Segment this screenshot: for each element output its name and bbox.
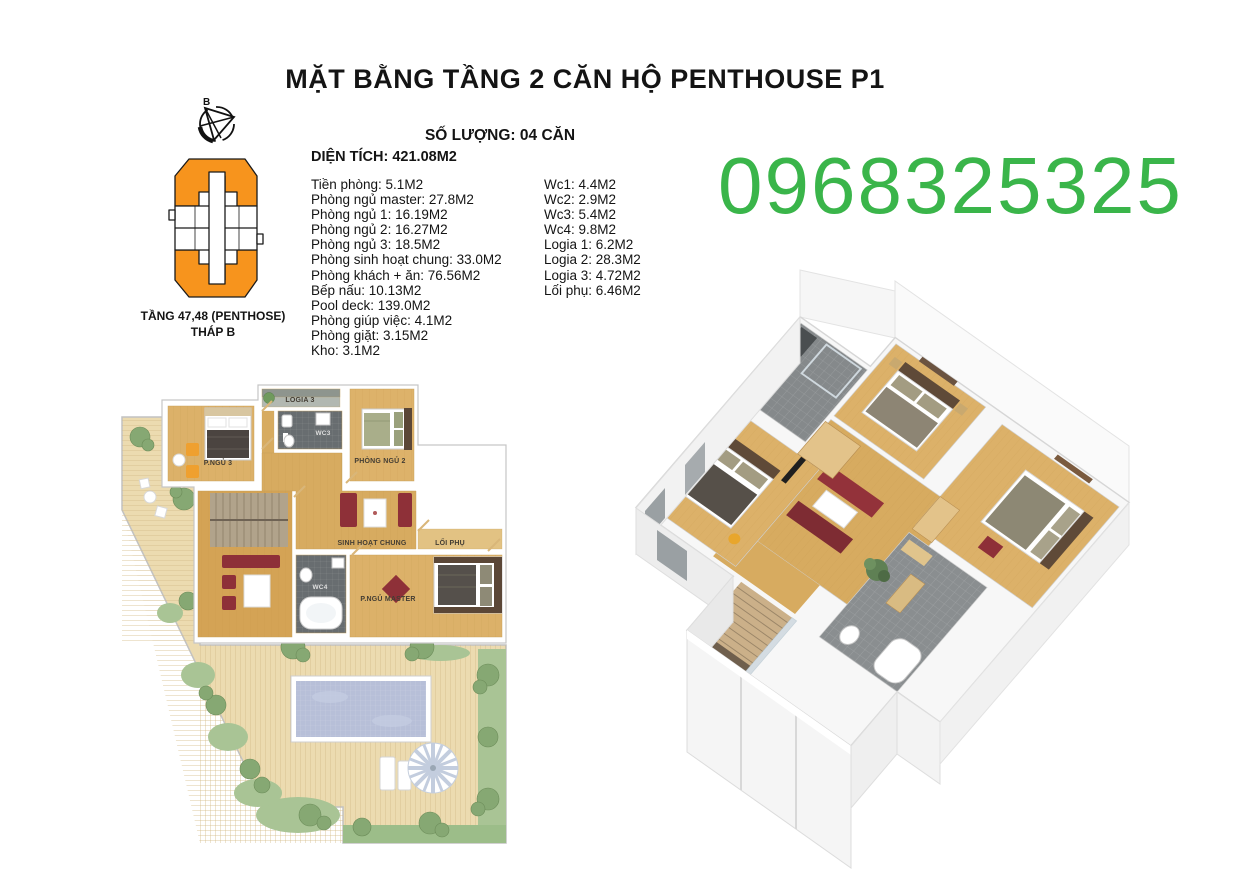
list-item: Phòng giặt: 3.15M2 (311, 328, 502, 343)
label-common: SINH HOẠT CHUNG (337, 540, 406, 547)
total-area-label: DIỆN TÍCH: 421.08M2 (311, 149, 457, 165)
list-item: Wc3: 5.4M2 (544, 207, 641, 222)
list-item: Phòng ngủ 1: 16.19M2 (311, 207, 502, 222)
label-wc3: WC3 (315, 430, 330, 437)
compass-label: B (203, 97, 210, 108)
tower-footprint-diagram (165, 150, 265, 306)
list-item: Phòng sinh hoạt chung: 33.0M2 (311, 252, 502, 267)
label-master: P.NGỦ MASTER (360, 594, 415, 603)
logia-plant-icon (264, 393, 275, 404)
quantity-label: SỐ LƯỢNG: 04 CĂN (380, 127, 620, 145)
list-item: Phòng giúp việc: 4.1M2 (311, 313, 502, 328)
page-title: MẶT BẰNG TẦNG 2 CĂN HỘ PENTHOUSE P1 (250, 64, 920, 95)
tower-core (209, 172, 225, 284)
list-item: Bếp nấu: 10.13M2 (311, 283, 502, 298)
list-item: Wc1: 4.4M2 (544, 177, 641, 192)
staircase-2d (210, 493, 288, 547)
list-item: Tiền phòng: 5.1M2 (311, 177, 502, 192)
phone-number: 0968325325 (718, 146, 1183, 226)
tower-caption-line2: THÁP B (118, 324, 308, 340)
tower-caption-line1: TẦNG 47,48 (PENTHOSE) (118, 308, 308, 324)
label-logia3: LOGIA 3 (285, 397, 314, 404)
tower-caption: TẦNG 47,48 (PENTHOSE) THÁP B (118, 308, 308, 340)
sun-loungers (380, 757, 411, 790)
list-item: Phòng ngủ 2: 16.27M2 (311, 222, 502, 237)
list-item: Phòng ngủ 3: 18.5M2 (311, 237, 502, 252)
label-wc4: WC4 (312, 584, 327, 591)
flyer-page: MẶT BẰNG TẦNG 2 CĂN HỘ PENTHOUSE P1 SỐ L… (0, 0, 1240, 877)
list-item: Logia 1: 6.2M2 (544, 237, 641, 252)
list-item: Pool deck: 139.0M2 (311, 298, 502, 313)
label-bedroom3: P.NGỦ 3 (204, 458, 233, 467)
swimming-pool (291, 676, 431, 742)
list-item: Phòng khách + ăn: 76.56M2 (311, 268, 502, 283)
floor-plan-3d (545, 258, 1225, 873)
umbrella-icon (408, 743, 458, 793)
room-area-list-left: Tiền phòng: 5.1M2 Phòng ngủ master: 27.8… (311, 177, 502, 358)
list-item: Kho: 3.1M2 (311, 343, 502, 358)
compass-north-icon: B (183, 94, 251, 154)
bedroom2-furniture (362, 408, 412, 450)
list-item: Phòng ngủ master: 27.8M2 (311, 192, 502, 207)
list-item: Wc2: 2.9M2 (544, 192, 641, 207)
label-bedroom2: PHÒNG NGỦ 2 (354, 456, 405, 465)
list-item: Wc4: 9.8M2 (544, 222, 641, 237)
floor-plan-2d: P.NGỦ 3 LOGIA 3 WC3 PHÒNG NGỦ 2 SINH HOẠ… (110, 375, 510, 865)
